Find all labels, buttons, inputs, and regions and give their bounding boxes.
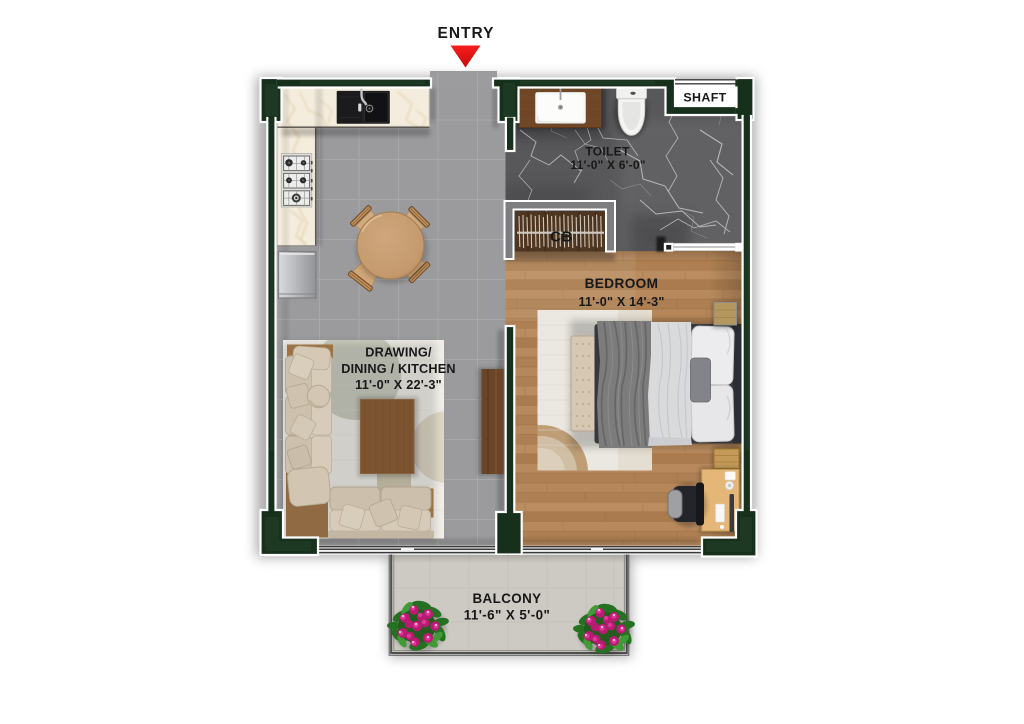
svg-text:BALCONY: BALCONY <box>472 591 541 606</box>
svg-text:BEDROOM: BEDROOM <box>585 276 659 291</box>
svg-text:11'-0" X 14'-3": 11'-0" X 14'-3" <box>578 295 664 309</box>
svg-text:DRAWING/: DRAWING/ <box>365 346 432 360</box>
svg-text:SHAFT: SHAFT <box>683 91 726 105</box>
svg-text:11'-6" X 5'-0": 11'-6" X 5'-0" <box>464 608 550 623</box>
svg-text:TOILET: TOILET <box>585 145 630 159</box>
svg-text:11'-0" X 22'-3": 11'-0" X 22'-3" <box>355 378 442 392</box>
svg-text:ENTRY: ENTRY <box>438 25 495 42</box>
svg-text:11'-0" X 6'-0": 11'-0" X 6'-0" <box>570 158 645 172</box>
svg-text:DINING / KITCHEN: DINING / KITCHEN <box>341 362 456 376</box>
svg-text:CB: CB <box>550 229 573 246</box>
